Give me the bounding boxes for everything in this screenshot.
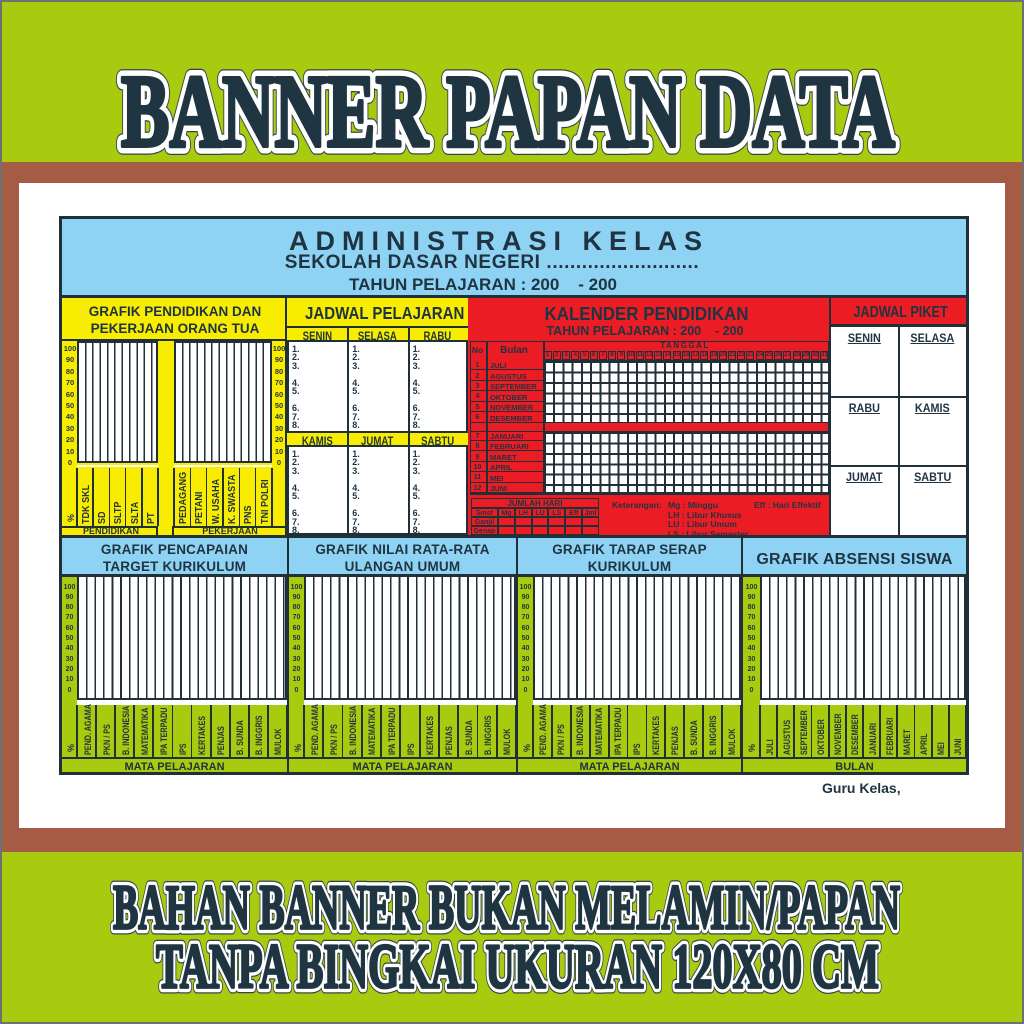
svg-text:TANPA BINGKAI UKURAN 120X80 CM: TANPA BINGKAI UKURAN 120X80 CM bbox=[156, 931, 879, 1002]
svg-text:BANNER PAPAN DATA: BANNER PAPAN DATA bbox=[121, 54, 895, 169]
